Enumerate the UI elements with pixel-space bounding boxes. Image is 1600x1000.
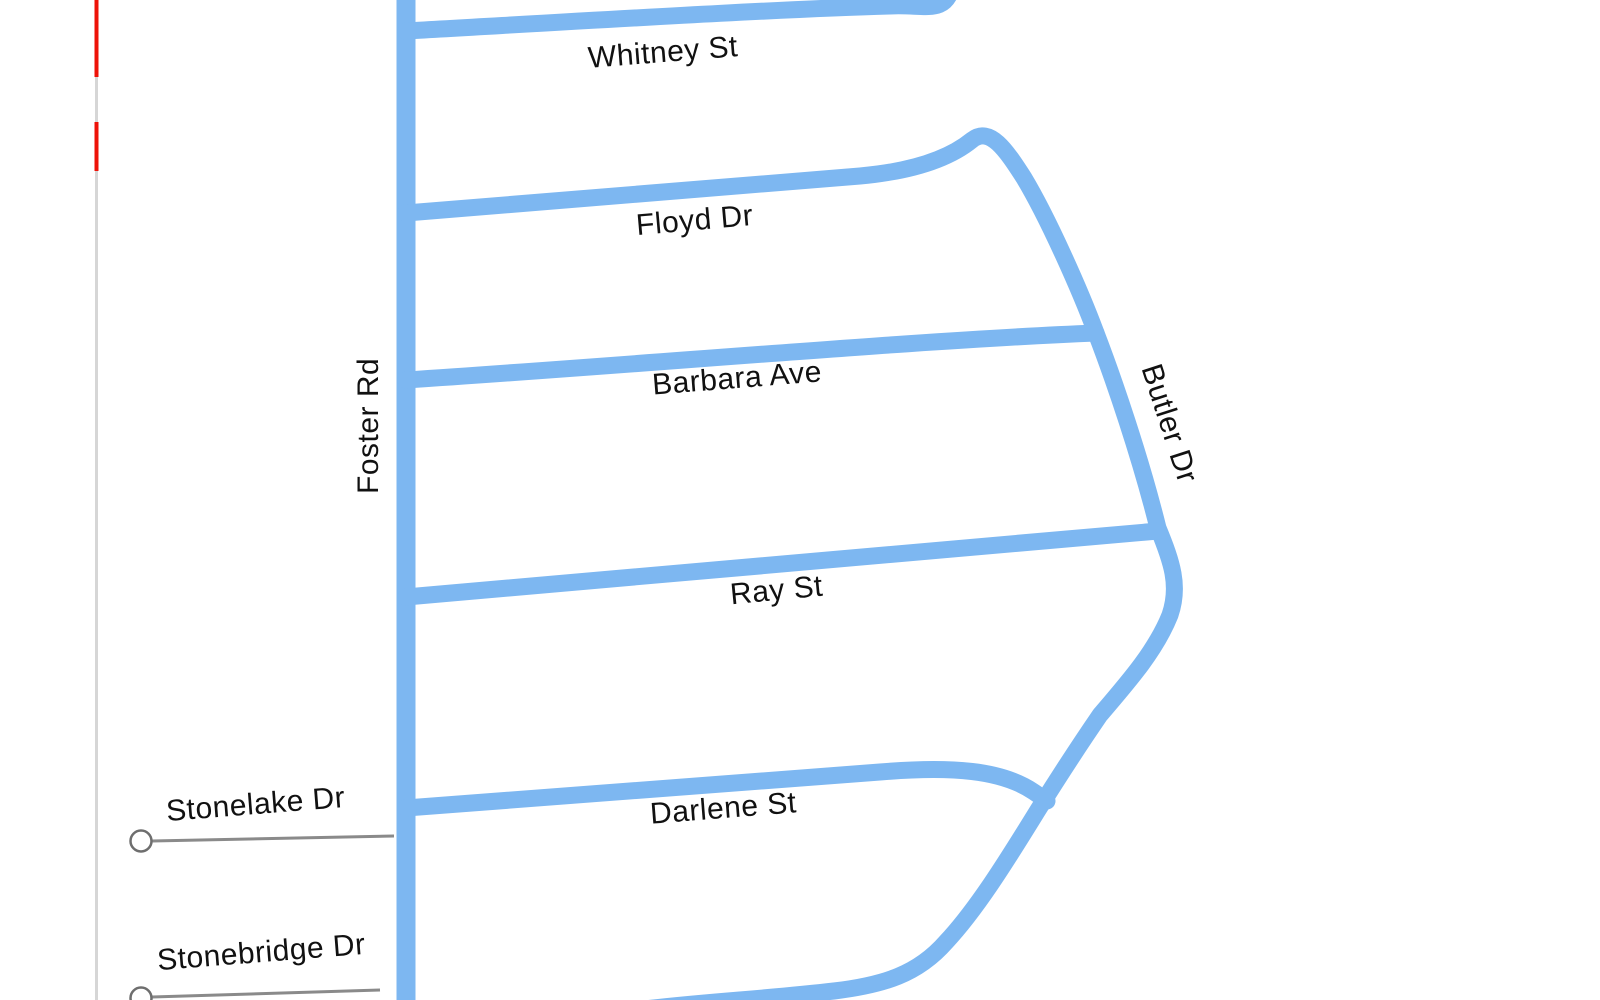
street-label-foster-rd: Foster Rd (352, 358, 386, 494)
map-canvas[interactable]: Whitney St Floyd Dr Barbara Ave Ray St D… (0, 0, 1600, 1000)
road-whitney-st (406, 0, 953, 31)
stonelake-endpoint-circle (131, 831, 152, 852)
stonebridge-leader-line (152, 990, 380, 997)
stonelake-leader-line (152, 836, 394, 841)
roads-group (406, 0, 1174, 1000)
map-drawing (0, 0, 1600, 1000)
stonebridge-endpoint-circle (131, 988, 152, 1000)
